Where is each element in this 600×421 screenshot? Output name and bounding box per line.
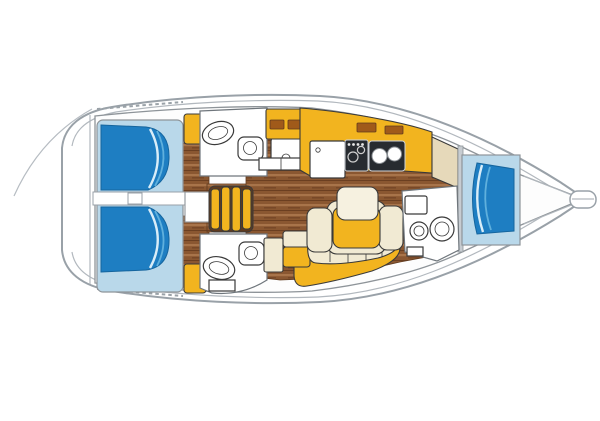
locker-slot-1 (270, 120, 284, 129)
pouf-top (283, 231, 310, 247)
companionway-step-1 (211, 189, 220, 229)
berth-divider-step (128, 193, 142, 204)
forward-cabin-group (462, 155, 520, 245)
stove-knob-4 (361, 143, 364, 146)
head-starboard-group (200, 234, 267, 293)
pouf-front (283, 247, 310, 267)
forward-head-step (407, 247, 423, 256)
settee-cushion-left (307, 208, 332, 252)
forward-head-sink (410, 222, 428, 240)
head-starboard-toilet (239, 242, 264, 265)
forward-head-cabinet (405, 196, 427, 214)
settee-divider-panel (264, 238, 283, 272)
head-port-group (199, 108, 310, 176)
companionway-step-3 (232, 187, 241, 231)
companionway-step-2 (222, 187, 231, 231)
companionway-step-4 (243, 189, 252, 229)
stove-knob-2 (352, 143, 355, 146)
forward-head-group (402, 186, 459, 261)
aft-cabins-group (93, 120, 185, 292)
galley-locker-slot-1 (357, 123, 376, 132)
boat-floorplan (0, 0, 600, 421)
head-port-toilet (238, 137, 263, 160)
sink-bowl-left (372, 149, 387, 164)
galley-locker-slot-2 (385, 126, 403, 134)
seat-back (337, 187, 378, 220)
engine-box (185, 192, 211, 222)
forward-head-toilet (430, 217, 454, 241)
stove-knob-3 (357, 143, 360, 146)
settee-cushion-right (379, 206, 403, 250)
sink-bowl-right (388, 147, 402, 161)
head-starboard-shelf (209, 280, 235, 291)
fridge (310, 141, 345, 178)
stove-knob-1 (348, 143, 351, 146)
